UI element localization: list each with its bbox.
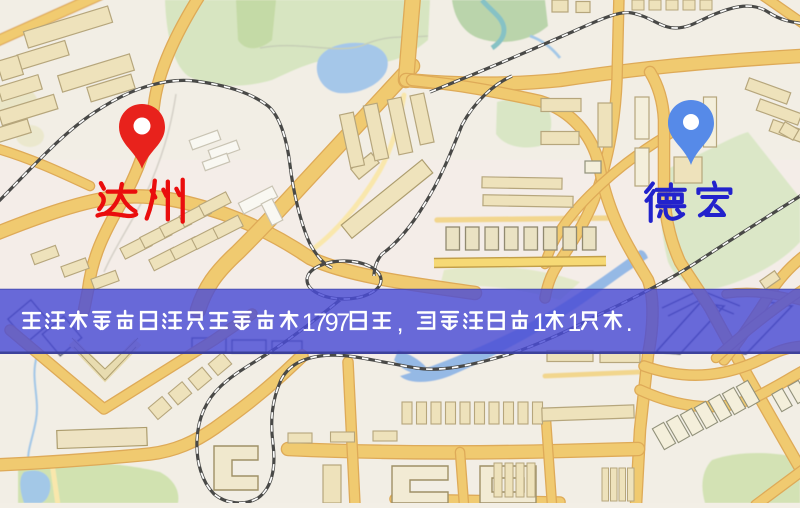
svg-text:1: 1: [568, 309, 582, 337]
svg-text:.: .: [626, 309, 633, 337]
svg-text:1: 1: [533, 309, 547, 337]
svg-text:7: 7: [336, 309, 350, 337]
svg-text:,: ,: [397, 309, 404, 337]
